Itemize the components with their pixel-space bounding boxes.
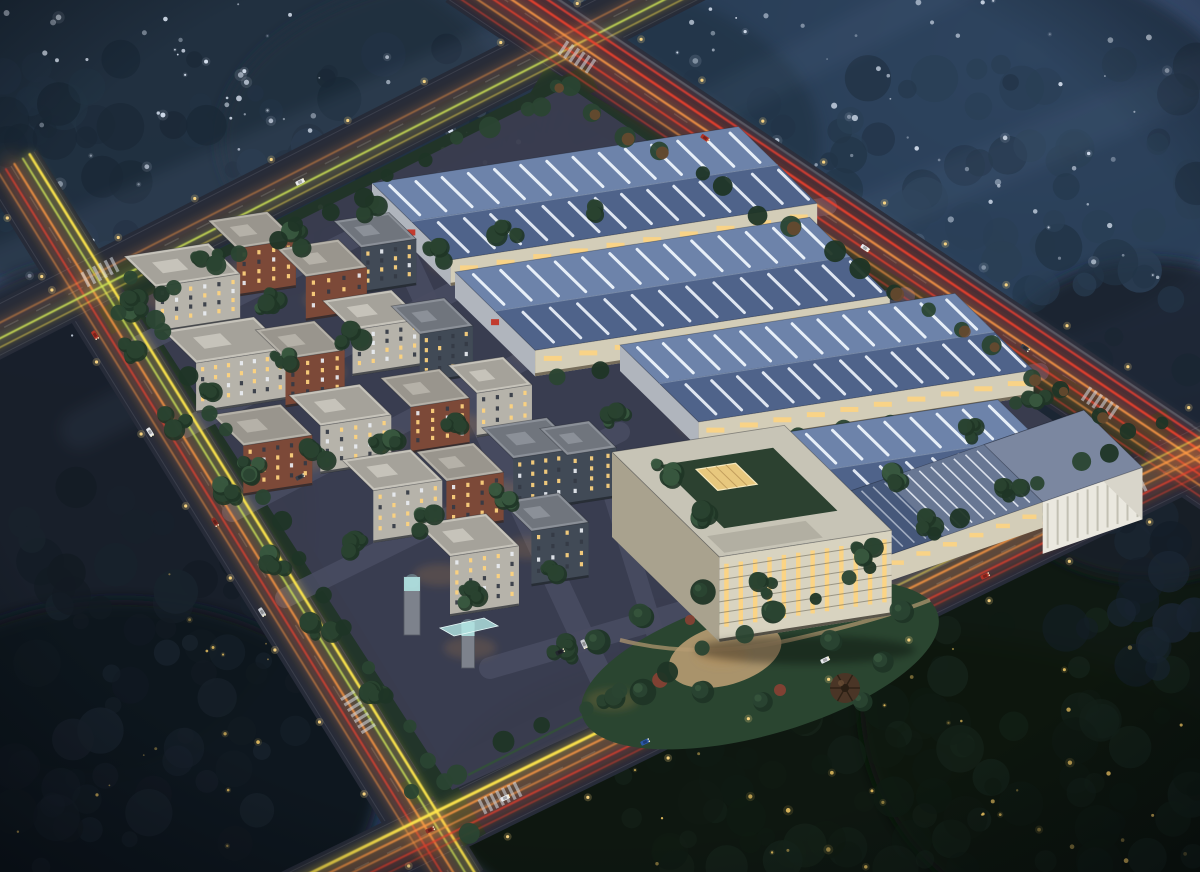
aerial-night-rendering <box>0 0 1200 872</box>
industrial-park-scene <box>0 0 1200 872</box>
vignette <box>0 0 1200 872</box>
